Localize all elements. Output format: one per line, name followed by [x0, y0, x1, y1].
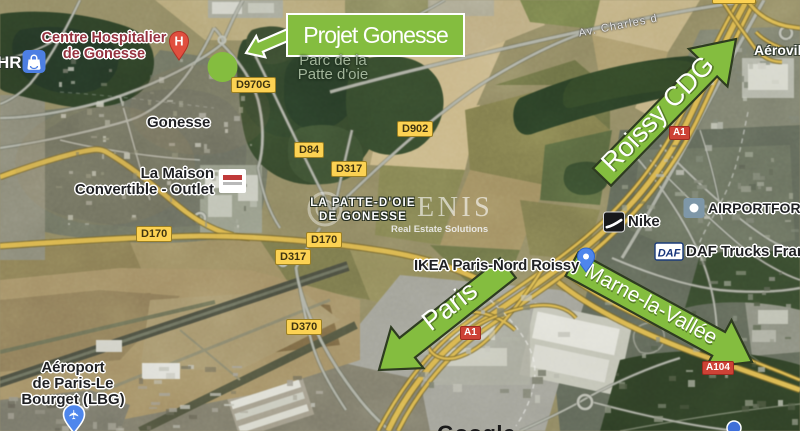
svg-text:H: H: [174, 35, 183, 49]
svg-text:✈: ✈: [67, 409, 82, 420]
svg-text:Marne-la-Vallée: Marne-la-Vallée: [581, 259, 721, 349]
svg-text:Projet Gonesse: Projet Gonesse: [303, 22, 448, 48]
svg-text:Roissy CDG: Roissy CDG: [595, 50, 720, 178]
svg-text:DAF: DAF: [658, 248, 681, 260]
